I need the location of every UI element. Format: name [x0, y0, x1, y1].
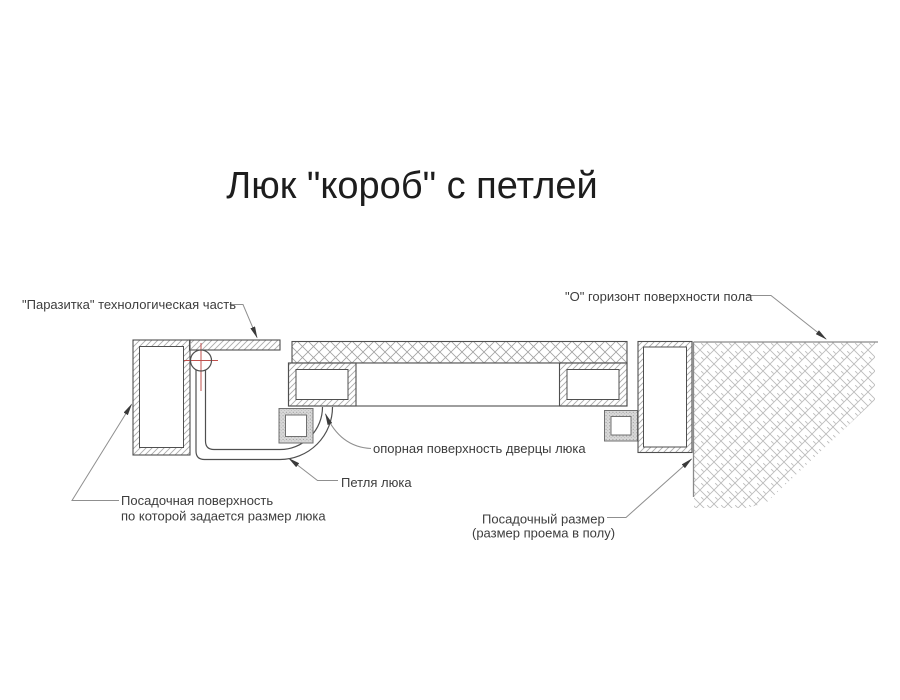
concrete-floor-hatch	[694, 343, 875, 509]
page-title: Люк "короб" с петлей	[226, 165, 597, 207]
door-seal-right-inner	[611, 417, 631, 436]
leader-seating-surface	[72, 405, 132, 501]
frame-profile-left-inner	[140, 347, 184, 448]
leader-support-surface	[326, 414, 372, 449]
leader-seating-size	[607, 459, 692, 518]
hatch-cross-section-diagram: Люк "короб" с петлей	[0, 0, 900, 700]
label-hinge: Петля люка	[341, 475, 412, 490]
technological-plate	[190, 340, 281, 350]
label-support-surface: опорная поверхность дверцы люка	[373, 441, 586, 456]
label-seating-surface-line2: по которой задается размер люка	[121, 509, 326, 524]
label-seating-size-line2: (размер проема в полу)	[472, 526, 615, 541]
label-parasitka: "Паразитка" технологическая часть	[22, 297, 236, 312]
door-frame-block-right-inner	[567, 370, 619, 400]
leader-floor-level	[748, 296, 826, 340]
door-tile-layer	[292, 342, 627, 364]
door-frame-block-left-inner	[296, 370, 348, 400]
label-seating-size-line1: Посадочный размер	[482, 512, 605, 527]
technical-drawing-page: Люк "короб" с петлей	[0, 0, 900, 700]
label-floor-level: "О" горизонт поверхности пола	[565, 289, 753, 304]
label-seating-surface-line1: Посадочная поверхность	[121, 493, 273, 508]
leader-hinge	[289, 459, 338, 481]
door-seal-left-inner	[286, 415, 307, 437]
frame-profile-right-inner	[644, 347, 687, 447]
